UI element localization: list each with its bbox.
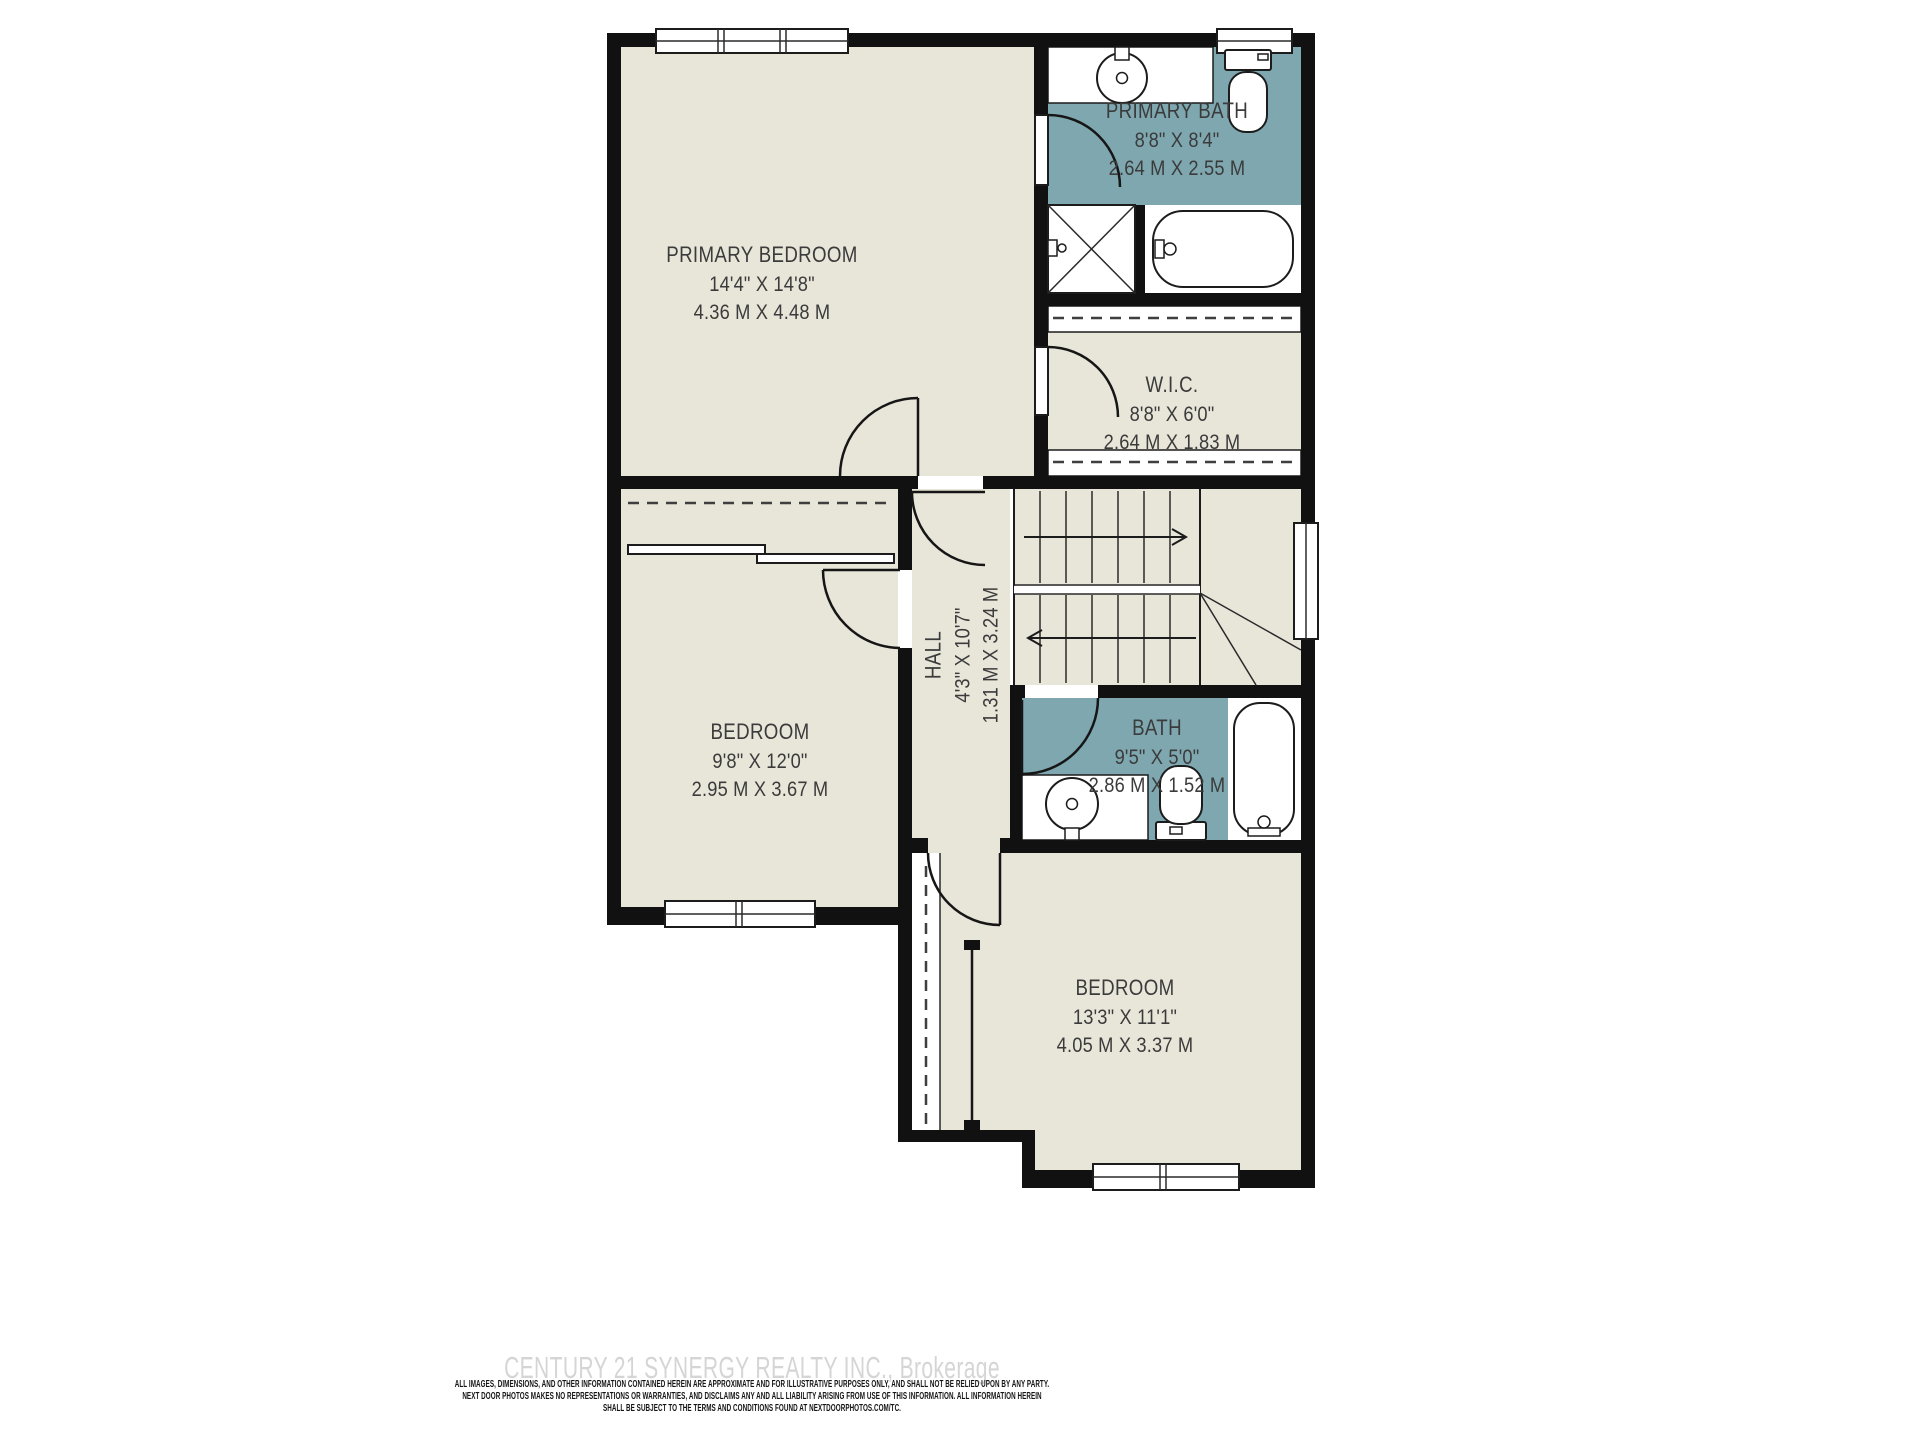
room-dim-imperial: 9'5" X 5'0" xyxy=(1089,743,1226,772)
room-dim-imperial: 14'4" X 14'8" xyxy=(666,270,857,299)
bathtub-icon xyxy=(1234,703,1294,836)
window-icon-stair-landing xyxy=(1294,523,1318,639)
room-name: HALL xyxy=(919,587,948,724)
disclaimer-line: NEXT DOOR PHOTOS MAKES NO REPRESENTATION… xyxy=(462,1390,1041,1402)
room-label-primary-bath: PRIMARY BATH 8'8" X 8'4" 2.64 M X 2.55 M xyxy=(1106,97,1248,183)
room-name: BEDROOM xyxy=(692,718,829,747)
room-name: PRIMARY BATH xyxy=(1106,97,1248,126)
room-name: BEDROOM xyxy=(1057,974,1194,1003)
room-dim-imperial: 9'8" X 12'0" xyxy=(692,747,829,776)
window-icon-primary-bedroom xyxy=(656,29,848,53)
window-icon-left-bedroom xyxy=(665,901,815,927)
room-label-hall: HALL 4'3" X 10'7" 1.31 M X 3.24 M xyxy=(919,587,1005,724)
room-name: W.I.C. xyxy=(1104,371,1241,400)
room-name: PRIMARY BEDROOM xyxy=(666,241,857,270)
shower-icon xyxy=(1048,205,1135,293)
room-dim-metric: 2.64 M X 1.83 M xyxy=(1104,428,1241,457)
bathtub-icon xyxy=(1153,211,1293,287)
room-dim-imperial: 4'3" X 10'7" xyxy=(948,587,977,724)
room-dim-metric: 4.36 M X 4.48 M xyxy=(666,298,857,327)
room-dim-metric: 1.31 M X 3.24 M xyxy=(976,587,1005,724)
room-label-wic: W.I.C. 8'8" X 6'0" 2.64 M X 1.83 M xyxy=(1104,371,1241,457)
room-label-bedroom-bottom: BEDROOM 13'3" X 11'1" 4.05 M X 3.37 M xyxy=(1057,974,1194,1060)
room-dim-imperial: 13'3" X 11'1" xyxy=(1057,1003,1194,1032)
room-dim-metric: 4.05 M X 3.37 M xyxy=(1057,1031,1194,1060)
room-label-bedroom-left: BEDROOM 9'8" X 12'0" 2.95 M X 3.67 M xyxy=(692,718,829,804)
room-dim-metric: 2.86 M X 1.52 M xyxy=(1089,771,1226,800)
room-dim-imperial: 8'8" X 6'0" xyxy=(1104,400,1241,429)
room-dim-imperial: 8'8" X 8'4" xyxy=(1106,126,1248,155)
disclaimer-line: SHALL BE SUBJECT TO THE TERMS AND CONDIT… xyxy=(603,1402,901,1414)
disclaimer-line: ALL IMAGES, DIMENSIONS, AND OTHER INFORM… xyxy=(455,1378,1049,1390)
room-label-primary-bedroom: PRIMARY BEDROOM 14'4" X 14'8" 4.36 M X 4… xyxy=(666,241,857,327)
room-name: BATH xyxy=(1089,714,1226,743)
floor-plan-page: PRIMARY BEDROOM 14'4" X 14'8" 4.36 M X 4… xyxy=(0,0,1920,1440)
window-icon-bottom-bedroom xyxy=(1093,1164,1239,1190)
room-dim-metric: 2.95 M X 3.67 M xyxy=(692,775,829,804)
room-dim-metric: 2.64 M X 2.55 M xyxy=(1106,154,1248,183)
room-label-bath: BATH 9'5" X 5'0" 2.86 M X 1.52 M xyxy=(1089,714,1226,800)
